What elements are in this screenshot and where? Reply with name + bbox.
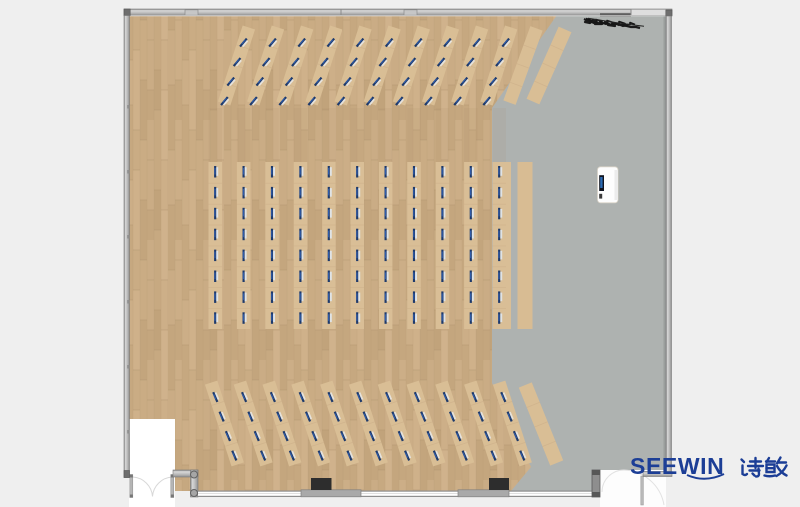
svg-text:SEEWIN: SEEWIN xyxy=(630,453,724,479)
